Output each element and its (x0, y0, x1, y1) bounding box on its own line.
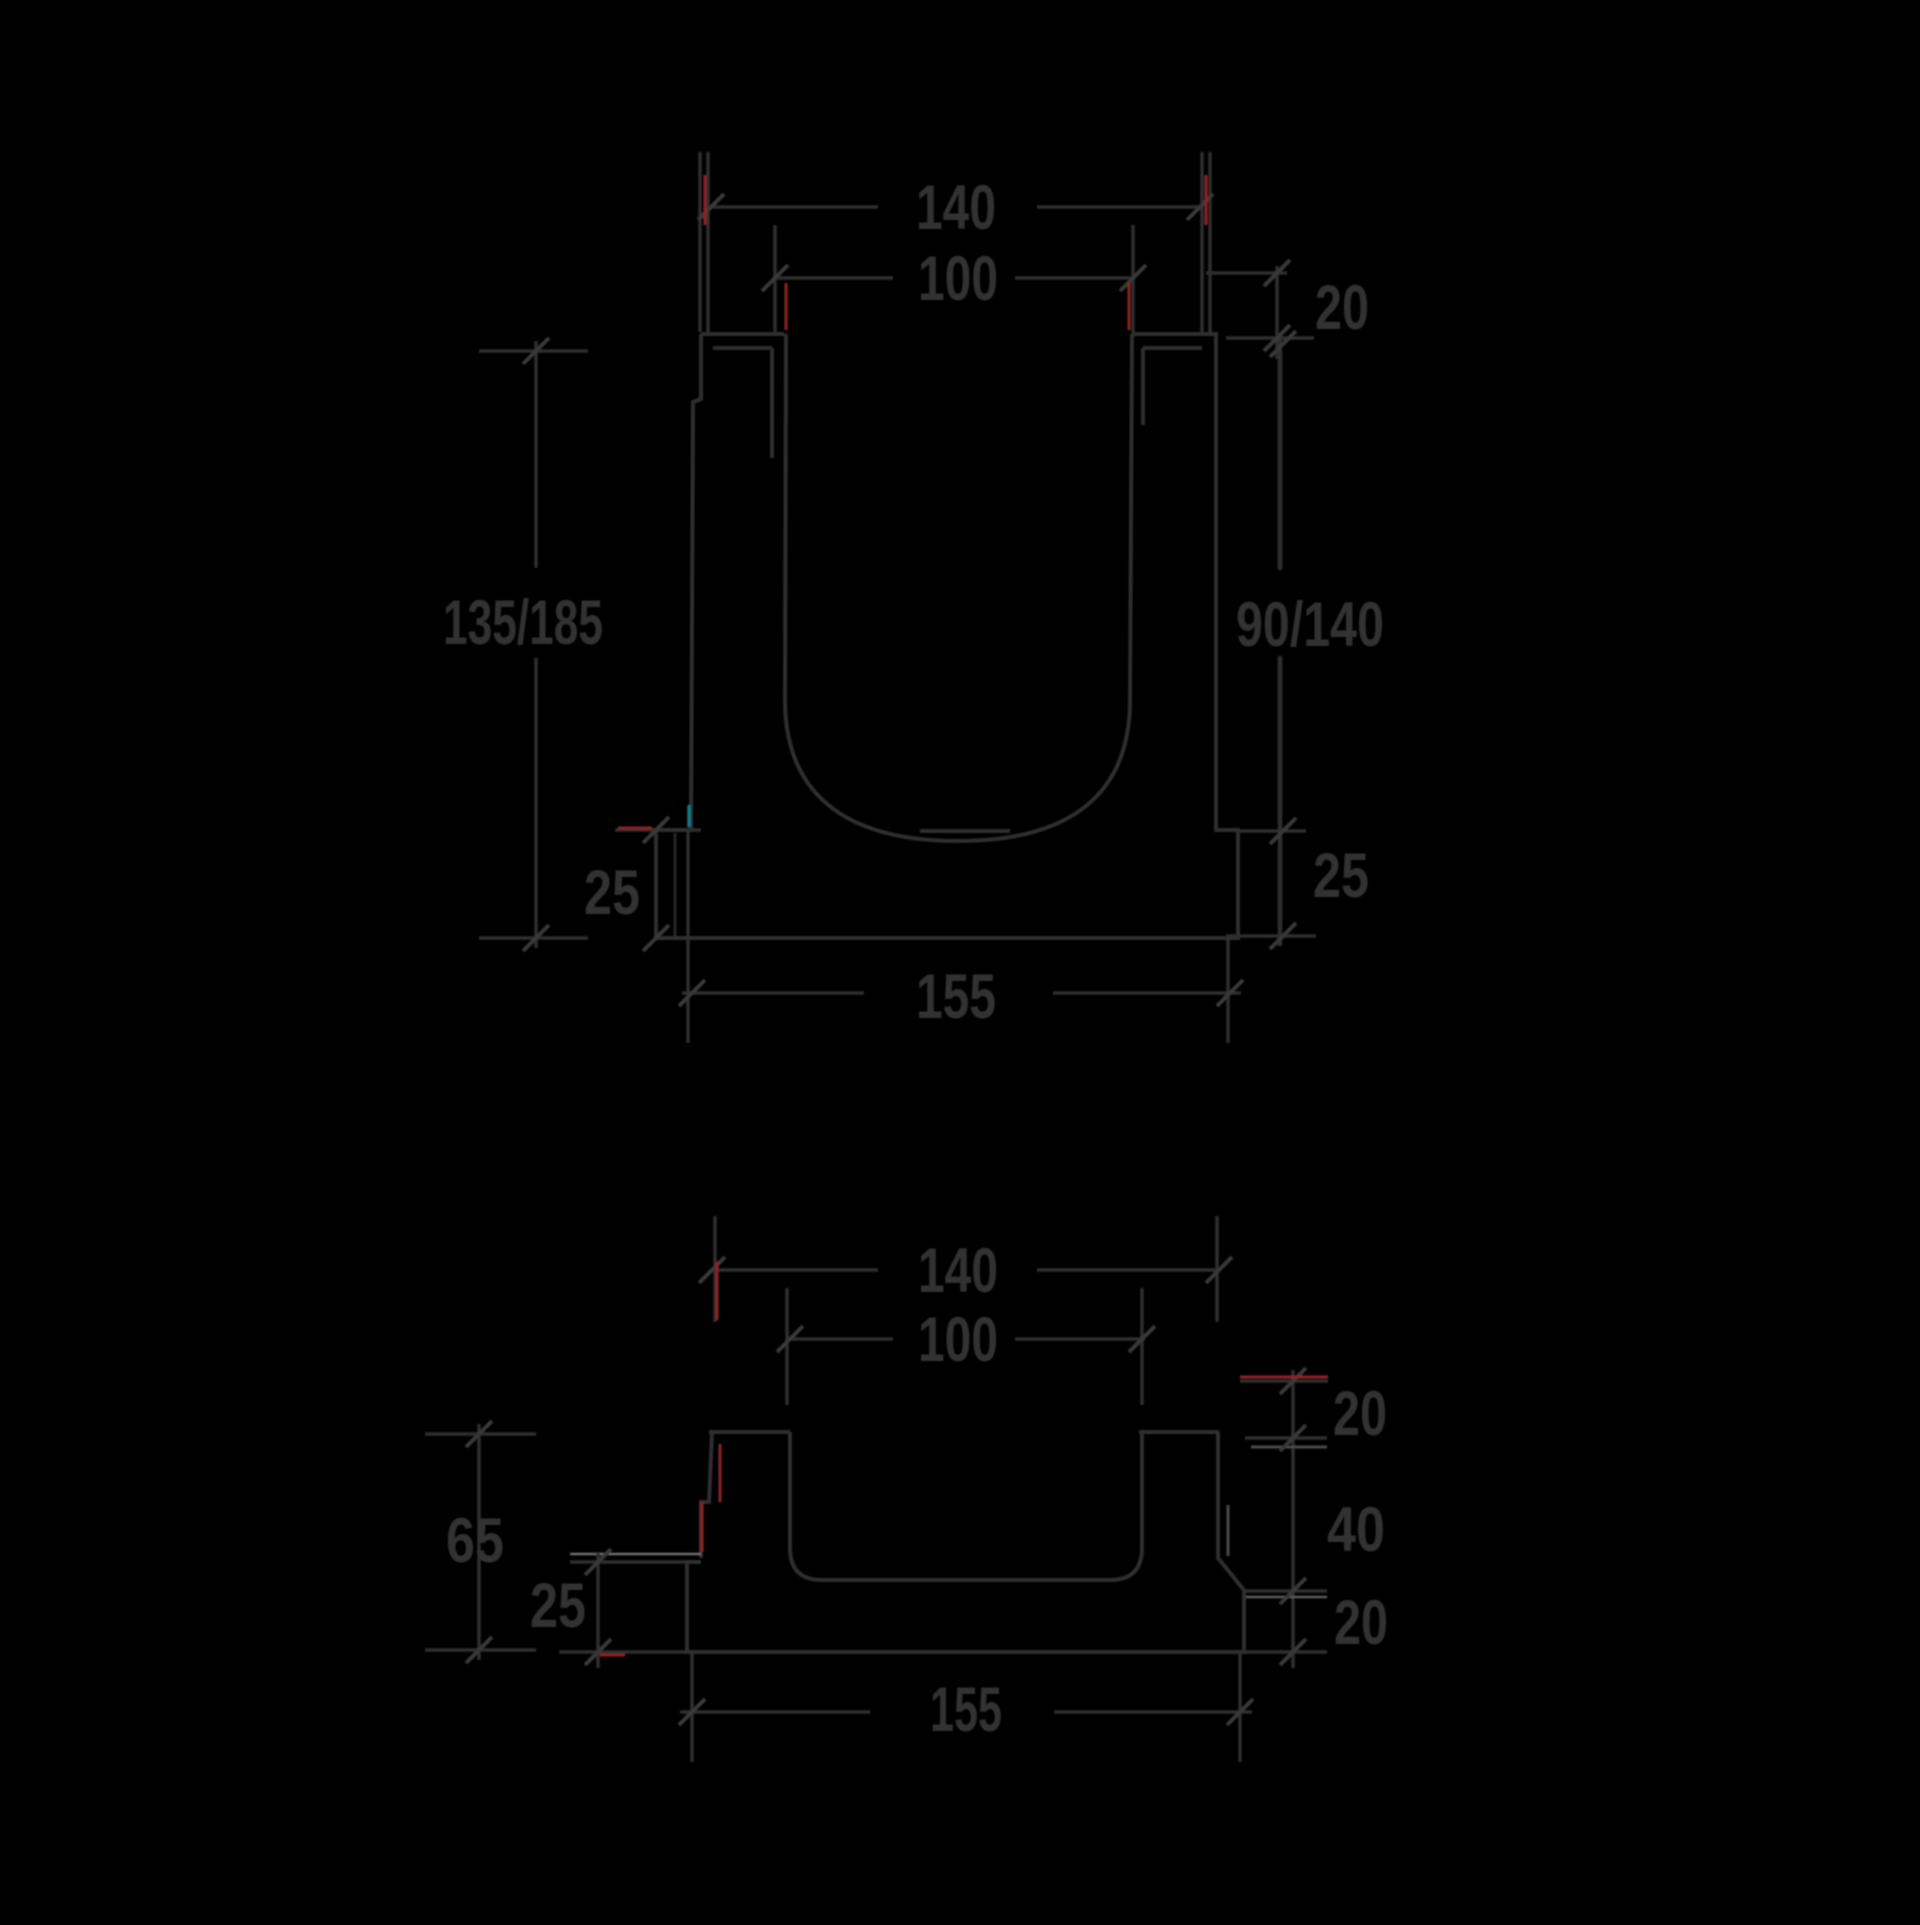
svg-text:65: 65 (446, 1506, 504, 1576)
svg-text:40: 40 (1327, 1495, 1385, 1565)
svg-text:100: 100 (918, 1305, 998, 1375)
svg-text:140: 140 (916, 173, 996, 243)
svg-text:140: 140 (918, 1236, 998, 1306)
svg-text:25: 25 (530, 1571, 586, 1641)
svg-text:20: 20 (1333, 1379, 1387, 1449)
svg-text:100: 100 (918, 244, 998, 314)
svg-text:155: 155 (916, 962, 996, 1032)
svg-text:135/185: 135/185 (443, 588, 603, 658)
svg-text:90/140: 90/140 (1236, 590, 1384, 660)
svg-text:25: 25 (1313, 841, 1369, 911)
svg-text:25: 25 (584, 858, 640, 928)
svg-text:155: 155 (930, 1675, 1002, 1745)
svg-text:20: 20 (1315, 273, 1369, 343)
svg-text:20: 20 (1334, 1588, 1388, 1658)
